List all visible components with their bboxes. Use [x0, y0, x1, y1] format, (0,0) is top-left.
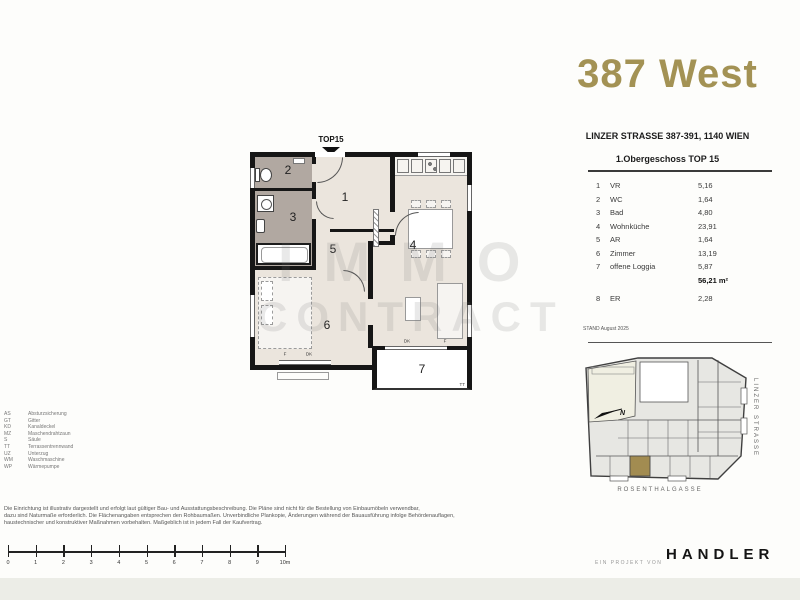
legend-row: TTTerrassentrennwand — [4, 444, 73, 451]
scale-tick — [230, 545, 231, 557]
entrance-stub — [668, 476, 686, 481]
sink-unit — [411, 159, 423, 173]
legend-term: Säule — [28, 437, 41, 443]
room-label-wohnkueche: 4 — [410, 238, 417, 252]
table-row: 1 VR 5,16 — [596, 179, 772, 193]
disclaimer-line: dazu sind Naturmaße erforderlich. Die Fl… — [4, 513, 514, 520]
table-row: 6 Zimmer 13,19 — [596, 247, 772, 261]
scale-label: 2 — [62, 560, 65, 566]
room-nr: 3 — [596, 206, 610, 220]
room-name: ER — [610, 292, 698, 306]
room-area: 1,64 — [698, 193, 772, 207]
highlighted-unit — [630, 456, 650, 476]
scale-tick — [257, 545, 258, 557]
scale-tick — [174, 545, 175, 557]
room-label-zimmer: 6 — [324, 318, 331, 332]
table-row: 2 WC 1,64 — [596, 193, 772, 207]
legend-abbr: MZ — [4, 431, 28, 438]
legend-abbr: KD — [4, 424, 28, 431]
window — [467, 185, 472, 211]
room-label-ar: 5 — [330, 242, 337, 256]
entrance-stub — [610, 476, 628, 481]
disclaimer-line: haustechnischer und konstruktiver Maßnah… — [4, 520, 514, 527]
room-area: 2,28 — [698, 292, 772, 306]
divider-map — [588, 342, 772, 343]
sofa — [437, 283, 463, 339]
room-nr: 2 — [596, 193, 610, 207]
room-area: 13,19 — [698, 247, 772, 261]
table-row: 7 offene Loggia 5,87 — [596, 260, 772, 274]
room-nr: 5 — [596, 233, 610, 247]
room-name: Zimmer — [610, 247, 698, 261]
scale-tick — [285, 545, 286, 557]
room-label-wc: 2 — [285, 163, 292, 177]
legend-abbr: UZ — [4, 451, 28, 458]
door-opening — [312, 164, 316, 182]
wall — [255, 188, 312, 191]
footer-prefix: EIN PROJEKT VON — [595, 560, 662, 566]
map-inner-block — [640, 362, 688, 402]
room-name: offene Loggia — [610, 260, 698, 274]
scale-label: 10m — [280, 560, 291, 566]
kitchen-unit — [439, 159, 451, 173]
spacer — [596, 274, 610, 288]
scale-label: 0 — [6, 560, 9, 566]
spacer — [610, 274, 698, 288]
room-label-bad: 3 — [290, 210, 297, 224]
room-name: VR — [610, 179, 698, 193]
room-label-vr: 1 — [342, 190, 349, 204]
plan-date: STAND August 2025 — [583, 326, 629, 332]
room-name: WC — [610, 193, 698, 207]
balcony — [741, 388, 747, 404]
chair — [426, 200, 436, 208]
scale-label: 3 — [90, 560, 93, 566]
legend-row: WMWaschmaschine — [4, 457, 73, 464]
scale-label: 7 — [200, 560, 203, 566]
entrance-top-label: TOP15 — [318, 135, 343, 144]
legend-abbr: WM — [4, 457, 28, 464]
stove-icon — [425, 159, 437, 173]
balcony — [741, 418, 747, 434]
page-title: 387 West — [560, 52, 775, 97]
table-row: 8 ER 2,28 — [596, 292, 772, 306]
chair — [441, 250, 451, 258]
chair — [411, 200, 421, 208]
wall — [255, 266, 316, 270]
street-label-linzer-strasse: LINZER STRASSE — [752, 378, 758, 478]
coffee-table — [405, 297, 421, 321]
door-opening — [368, 299, 373, 325]
room-label-loggia: 7 — [419, 362, 426, 376]
room-name: AR — [610, 233, 698, 247]
scale-tick — [202, 545, 203, 557]
legend-abbr: S — [4, 437, 28, 444]
mark-tt: TT — [460, 382, 466, 387]
scale-tick — [8, 545, 9, 557]
legend-row: MZMaschendrahtzaun — [4, 431, 73, 438]
window — [250, 295, 255, 337]
toilet-icon — [260, 168, 272, 182]
scale-tick — [119, 545, 120, 557]
sink-icon — [256, 219, 265, 233]
scale-label: 6 — [173, 560, 176, 566]
scale-tick — [36, 545, 37, 557]
legend-abbr: GT — [4, 418, 28, 425]
disclaimer: Die Einrichtung ist illustrativ dargeste… — [4, 506, 514, 528]
pillow — [261, 281, 273, 301]
brand-logo: HANDLER — [666, 546, 774, 563]
window-mark-dk: DK — [306, 352, 312, 357]
window — [467, 305, 472, 337]
room-nr: 8 — [596, 292, 610, 306]
legend-term: Maschendrahtzaun — [28, 431, 71, 437]
legend-abbr: AS — [4, 411, 28, 418]
bathtub-inner — [261, 247, 308, 263]
legend-row: WPWärmepumpe — [4, 464, 73, 471]
room-nr: 6 — [596, 247, 610, 261]
legend-row: GTGitter — [4, 418, 73, 425]
room-area-table: 1 VR 5,16 2 WC 1,64 3 Bad 4,80 4 Wohnküc… — [596, 179, 772, 306]
room-nr: 1 — [596, 179, 610, 193]
table-row: 3 Bad 4,80 — [596, 206, 772, 220]
project-address: LINZER STRASSE 387-391, 1140 WIEN — [560, 131, 775, 141]
legend-row: UZUnterzug — [4, 451, 73, 458]
window-mark-f: F — [444, 339, 447, 344]
table-row: 4 Wohnküche 23,91 — [596, 220, 772, 234]
shaft — [373, 209, 379, 247]
scale-label: 1 — [34, 560, 37, 566]
washing-machine-drum — [261, 199, 272, 210]
legend-term: Terrassentrennwand — [28, 444, 73, 450]
floor-plan: 1 2 3 4 5 6 F DK DK F — [250, 152, 472, 370]
legend-row: ASAbsturzsicherung — [4, 411, 73, 418]
chair — [426, 250, 436, 258]
scale-tick — [63, 545, 64, 557]
courtyard — [588, 361, 636, 422]
window — [279, 360, 331, 365]
room-nr: 7 — [596, 260, 610, 274]
room-name: Wohnküche — [610, 220, 698, 234]
shelf — [293, 158, 305, 164]
legend-term: Wärmepumpe — [28, 464, 59, 470]
kitchen-unit — [397, 159, 409, 173]
table-total-row: 56,21 m² — [596, 274, 772, 288]
legend-abbr: WP — [4, 464, 28, 471]
window-mark-dk: DK — [404, 339, 410, 344]
legend-term: Waschmaschine — [28, 457, 65, 463]
room-area: 5,87 — [698, 260, 772, 274]
door-arc — [316, 201, 334, 219]
door-arc — [317, 157, 343, 183]
legend-row: SSäule — [4, 437, 73, 444]
legend-abbr: TT — [4, 444, 28, 451]
floor-title: 1.Obergeschoss TOP 15 — [560, 154, 775, 164]
abbreviation-legend: ASAbsturzsicherung GTGitter KDKanaldecke… — [4, 411, 73, 470]
site-map: N — [578, 352, 778, 492]
fridge-icon — [453, 159, 465, 173]
scale-tick — [91, 545, 92, 557]
room-area: 4,80 — [698, 206, 772, 220]
window-sill — [277, 372, 329, 380]
scale-tick — [147, 545, 148, 557]
legend-term: Gitter — [28, 418, 40, 424]
bathtub-icon — [256, 243, 311, 265]
street-label-rosenthalgasse: ROSENTHALGASSE — [580, 487, 740, 493]
divider-top — [588, 170, 772, 172]
door-arc — [395, 212, 419, 236]
loggia: 7 TT — [372, 346, 472, 390]
legend-term: Kanaldeckel — [28, 424, 55, 430]
table-row: 5 AR 1,64 — [596, 233, 772, 247]
site-map-svg: N — [578, 352, 778, 492]
wall — [330, 229, 394, 232]
kitchen-counter — [395, 157, 467, 176]
room-name: Bad — [610, 206, 698, 220]
legend-row: KDKanaldeckel — [4, 424, 73, 431]
scale-label: 5 — [145, 560, 148, 566]
total-area: 56,21 m² — [698, 274, 772, 288]
washing-machine-icon — [257, 195, 274, 212]
scale-label: 9 — [256, 560, 259, 566]
door-arc — [343, 270, 365, 292]
wall — [368, 245, 373, 348]
room-area: 5,16 — [698, 179, 772, 193]
legend-term: Unterzug — [28, 451, 48, 457]
scale-label: 8 — [228, 560, 231, 566]
window-mark-f: F — [284, 352, 287, 357]
room-area: 1,64 — [698, 233, 772, 247]
pillow — [261, 305, 273, 325]
window — [385, 346, 447, 350]
chair — [441, 200, 451, 208]
room-nr: 4 — [596, 220, 610, 234]
scale-label: 4 — [117, 560, 120, 566]
room-area: 23,91 — [698, 220, 772, 234]
legend-term: Absturzsicherung — [28, 411, 67, 417]
scale-bar: 0 1 2 3 4 5 6 7 8 9 10m — [8, 544, 285, 568]
footer-band — [0, 578, 800, 600]
